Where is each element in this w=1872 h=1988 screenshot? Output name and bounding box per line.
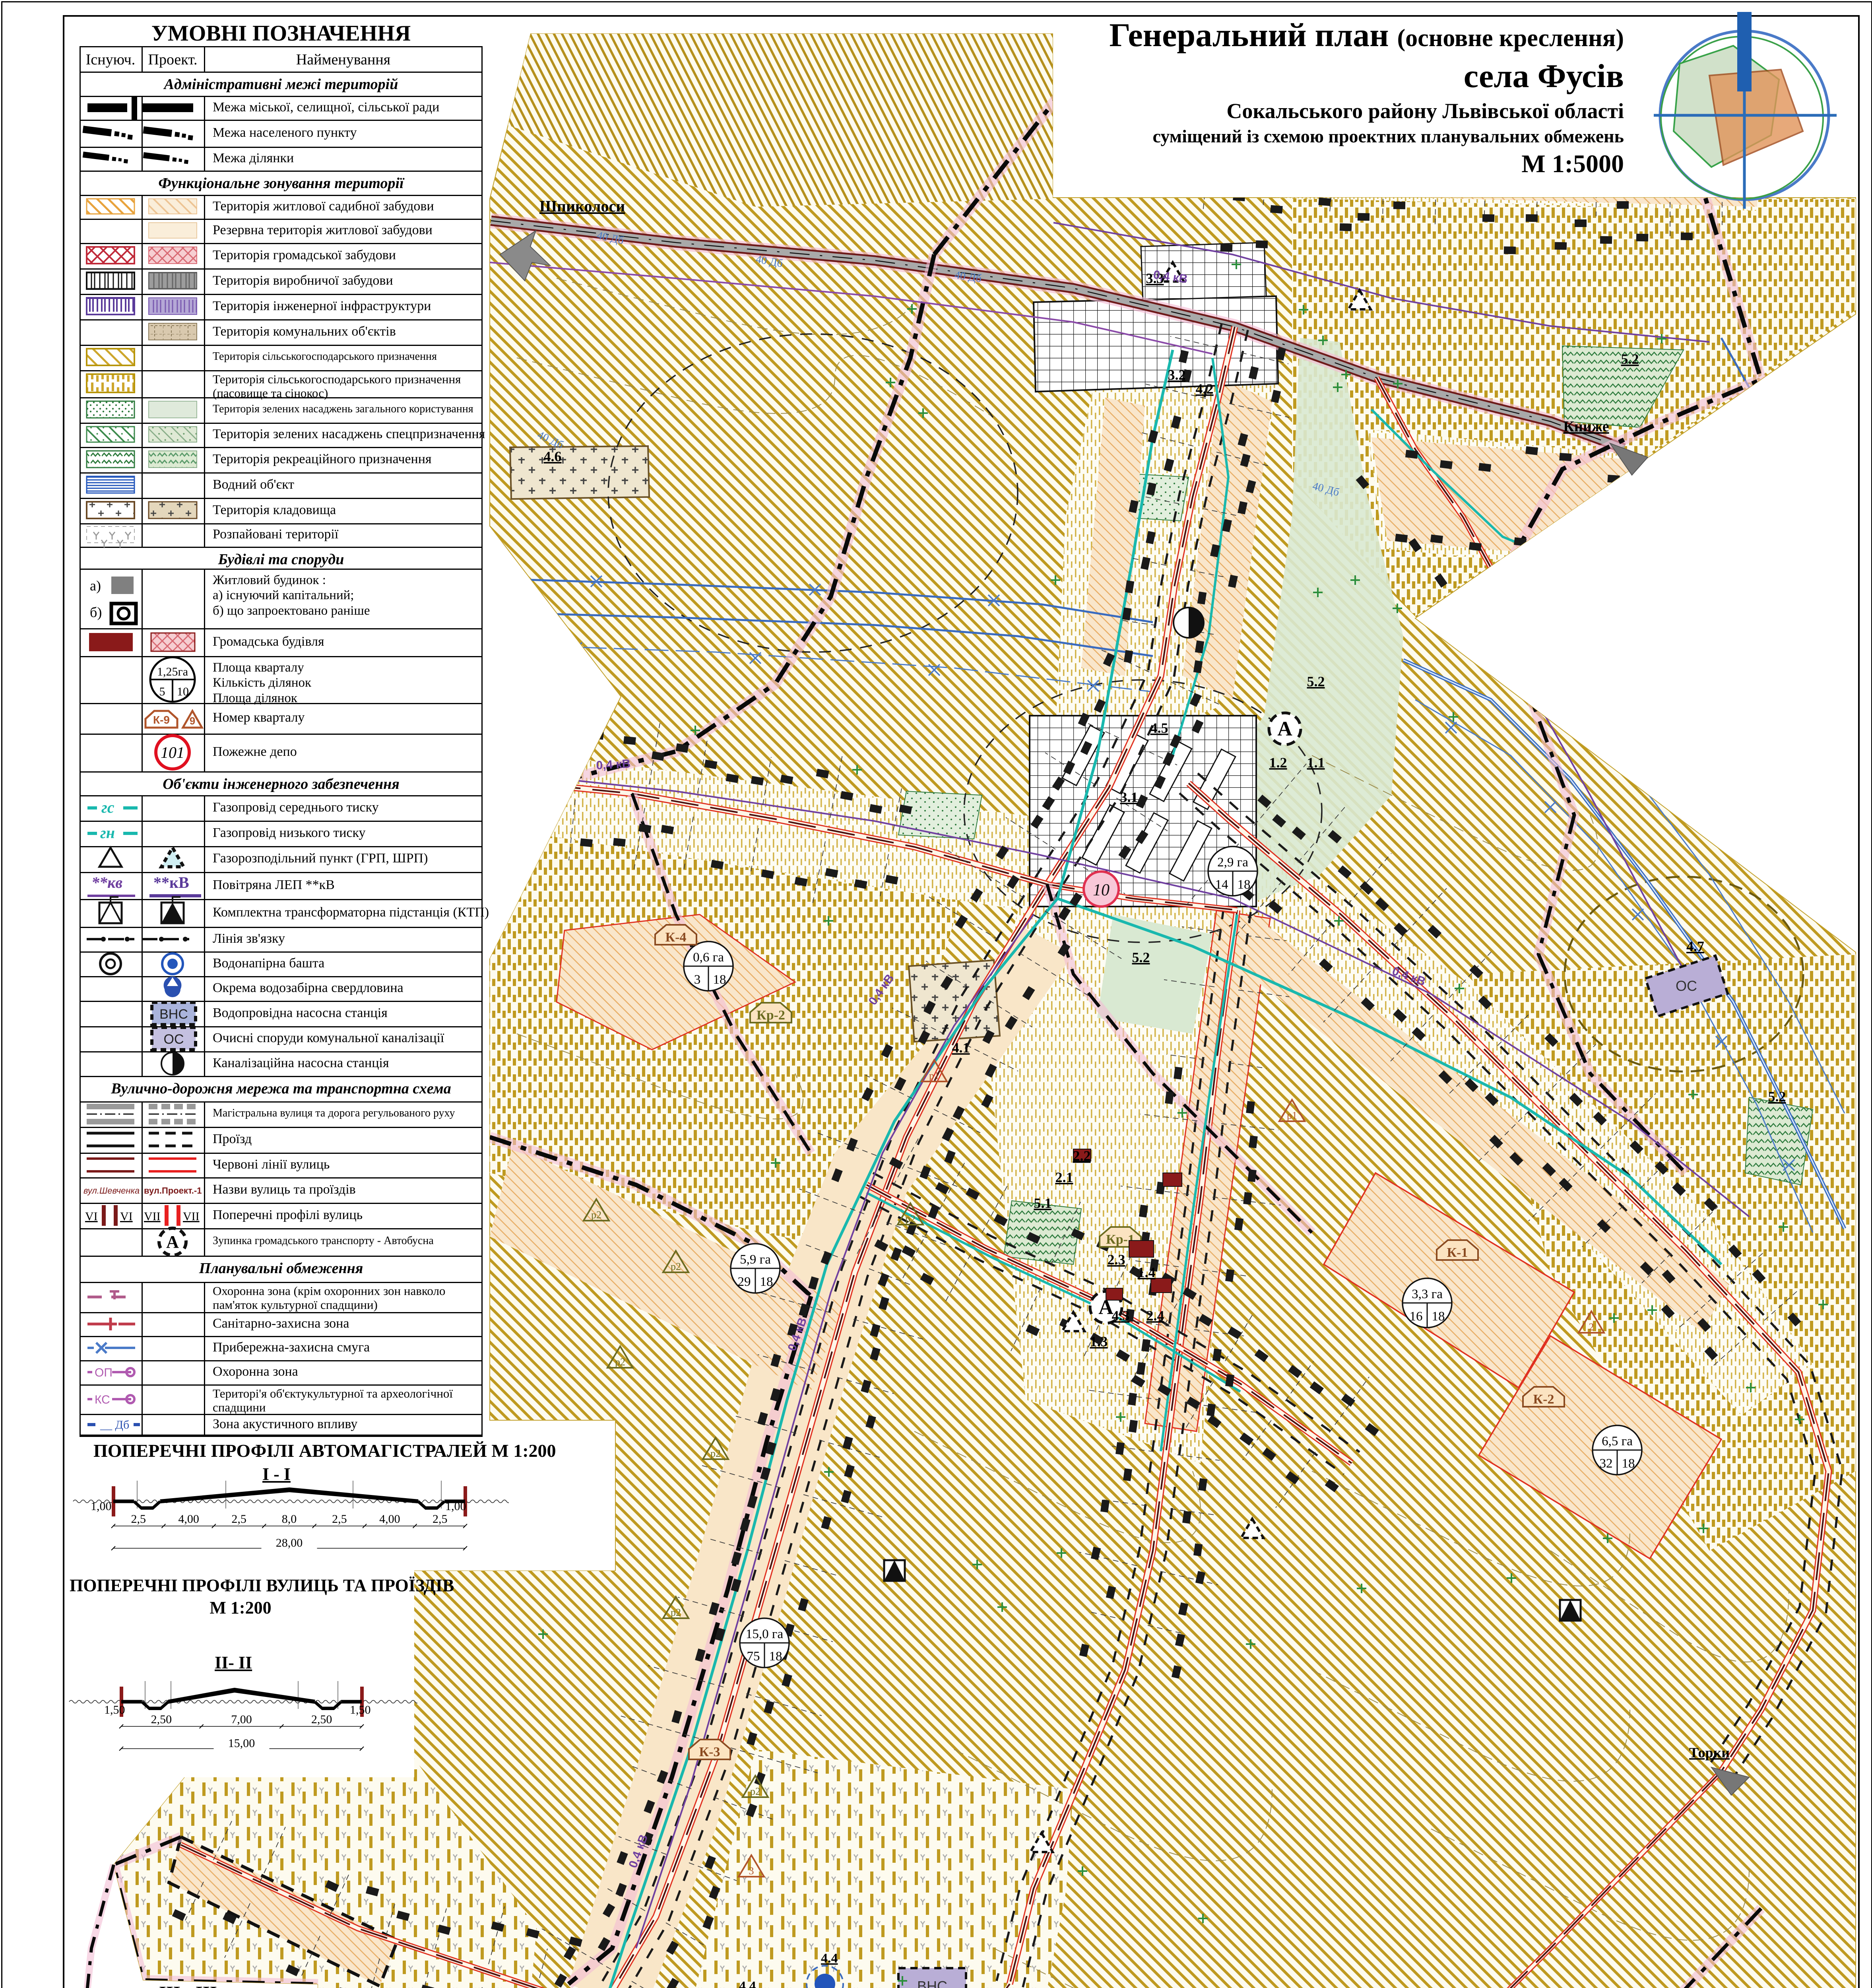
- svg-text:__ Дб: __ Дб: [100, 1418, 129, 1431]
- svg-text:б): б): [90, 604, 102, 620]
- svg-text:5.1: 5.1: [1034, 1195, 1052, 1211]
- svg-text:4.7: 4.7: [1686, 938, 1704, 954]
- svg-text:75: 75: [747, 1649, 760, 1664]
- svg-text:18: 18: [760, 1275, 773, 1289]
- svg-text:1.4: 1.4: [1138, 1264, 1156, 1280]
- svg-text:VII: VII: [183, 1210, 200, 1223]
- svg-text:15,00: 15,00: [228, 1737, 255, 1750]
- svg-text:5,9 га: 5,9 га: [740, 1252, 771, 1267]
- svg-text:32: 32: [1600, 1456, 1613, 1471]
- svg-text:3: 3: [749, 1865, 754, 1877]
- svg-text:10: 10: [177, 685, 189, 698]
- svg-text:2: 2: [1589, 1321, 1594, 1333]
- svg-text:3: 3: [694, 973, 701, 987]
- svg-text:р2: р2: [591, 1209, 601, 1221]
- svg-text:2,50: 2,50: [311, 1713, 332, 1726]
- svg-text:2,5: 2,5: [332, 1512, 347, 1526]
- svg-text:9: 9: [190, 715, 195, 727]
- svg-text:6,5 га: 6,5 га: [1602, 1434, 1633, 1448]
- svg-text:А: А: [166, 1232, 179, 1252]
- svg-text:5.2: 5.2: [1307, 674, 1325, 689]
- svg-text:3,3 га: 3,3 га: [1412, 1287, 1443, 1301]
- svg-text:р2: р2: [671, 1261, 681, 1272]
- svg-text:вул.Проект.-1: вул.Проект.-1: [144, 1186, 202, 1196]
- svg-text:1.3: 1.3: [1090, 1334, 1108, 1349]
- svg-text:28,00: 28,00: [276, 1536, 303, 1549]
- svg-text:4.3: 4.3: [1112, 1308, 1130, 1324]
- svg-text:р2: р2: [750, 1786, 760, 1797]
- svg-text:К-3: К-3: [699, 1745, 720, 1759]
- svg-text:4,00: 4,00: [178, 1512, 199, 1526]
- svg-text:р2: р2: [615, 1356, 625, 1368]
- svg-text:4.4: 4.4: [739, 1979, 756, 1988]
- svg-text:р2: р2: [671, 1607, 681, 1618]
- svg-text:4.1: 4.1: [952, 1040, 970, 1056]
- svg-text:1,25га: 1,25га: [157, 665, 188, 678]
- svg-text:4.2: 4.2: [1196, 381, 1214, 397]
- svg-text:1.2: 1.2: [1269, 755, 1287, 771]
- svg-text:ВНС: ВНС: [917, 1978, 947, 1988]
- svg-text:18: 18: [1622, 1456, 1635, 1471]
- svg-text:ОС: ОС: [1676, 978, 1697, 994]
- svg-text:К-4: К-4: [665, 930, 687, 945]
- svg-text:18: 18: [1238, 878, 1251, 892]
- svg-text:Кр-2: Кр-2: [757, 1008, 785, 1023]
- svg-text:3.1: 3.1: [1120, 789, 1138, 805]
- svg-text:4.5: 4.5: [1150, 720, 1168, 736]
- svg-text:15,0 га: 15,0 га: [746, 1627, 784, 1641]
- svg-text:5.2: 5.2: [1621, 351, 1639, 367]
- svg-text:10: 10: [1093, 881, 1110, 899]
- svg-text:2,5: 2,5: [433, 1512, 448, 1526]
- svg-text:101: 101: [161, 744, 184, 761]
- svg-text:ОС: ОС: [164, 1032, 184, 1047]
- svg-text:**кВ: **кВ: [153, 874, 189, 891]
- svg-text:0,4 кВ: 0,4 кВ: [596, 757, 631, 772]
- svg-text:К-1: К-1: [1447, 1245, 1468, 1260]
- svg-text:Торки: Торки: [1689, 1745, 1730, 1761]
- svg-text:ВНС: ВНС: [159, 1007, 188, 1022]
- svg-text:К-2: К-2: [1533, 1392, 1554, 1407]
- svg-text:4.6: 4.6: [544, 448, 562, 464]
- svg-text:0,6 га: 0,6 га: [693, 950, 724, 965]
- svg-text:2.3: 2.3: [1108, 1252, 1125, 1268]
- svg-text:16: 16: [1410, 1309, 1423, 1324]
- svg-text:18: 18: [1432, 1309, 1445, 1324]
- svg-text:VII: VII: [144, 1210, 161, 1223]
- svg-text:7,00: 7,00: [231, 1713, 252, 1726]
- svg-text:3.2: 3.2: [1168, 367, 1186, 383]
- svg-text:2,5: 2,5: [131, 1512, 146, 1526]
- svg-text:р2: р2: [710, 1448, 721, 1459]
- svg-text:5.2: 5.2: [1132, 949, 1150, 965]
- svg-text:Шпиколоси: Шпиколоси: [539, 197, 625, 215]
- svg-text:2,5: 2,5: [231, 1512, 246, 1526]
- svg-text:вул.Шевченка: вул.Шевченка: [83, 1186, 140, 1196]
- svg-text:Книже: Книже: [1563, 418, 1609, 435]
- svg-text:2.2: 2.2: [1073, 1148, 1091, 1164]
- svg-text:КС: КС: [95, 1393, 110, 1406]
- svg-text:гн: гн: [100, 824, 115, 842]
- svg-text:р1: р1: [1287, 1110, 1297, 1121]
- svg-text:8,0: 8,0: [282, 1512, 297, 1526]
- svg-text:14: 14: [1215, 878, 1228, 892]
- svg-text:а): а): [90, 578, 101, 594]
- svg-text:**кв: **кв: [91, 874, 122, 891]
- svg-text:4.4: 4.4: [821, 1951, 838, 1966]
- svg-text:VI: VI: [85, 1210, 98, 1223]
- svg-text:К-9: К-9: [153, 714, 170, 726]
- svg-text:2,50: 2,50: [151, 1713, 172, 1726]
- svg-text:А: А: [1277, 718, 1292, 740]
- svg-text:р2: р2: [905, 1213, 916, 1225]
- svg-text:29: 29: [738, 1275, 751, 1289]
- svg-text:1.1: 1.1: [1307, 755, 1325, 771]
- svg-text:5: 5: [159, 685, 165, 698]
- svg-text:2.4: 2.4: [1146, 1308, 1164, 1324]
- svg-text:18: 18: [769, 1649, 782, 1664]
- svg-text:VI: VI: [120, 1210, 133, 1223]
- svg-text:2.1: 2.1: [1055, 1169, 1073, 1185]
- svg-text:4,00: 4,00: [379, 1512, 400, 1526]
- svg-text:р1: р1: [929, 1070, 939, 1081]
- svg-text:гс: гс: [101, 798, 114, 816]
- svg-text:5.2: 5.2: [1768, 1089, 1786, 1105]
- svg-text:18: 18: [713, 973, 726, 987]
- svg-text:ОП: ОП: [95, 1366, 113, 1379]
- svg-text:2,9 га: 2,9 га: [1217, 855, 1248, 870]
